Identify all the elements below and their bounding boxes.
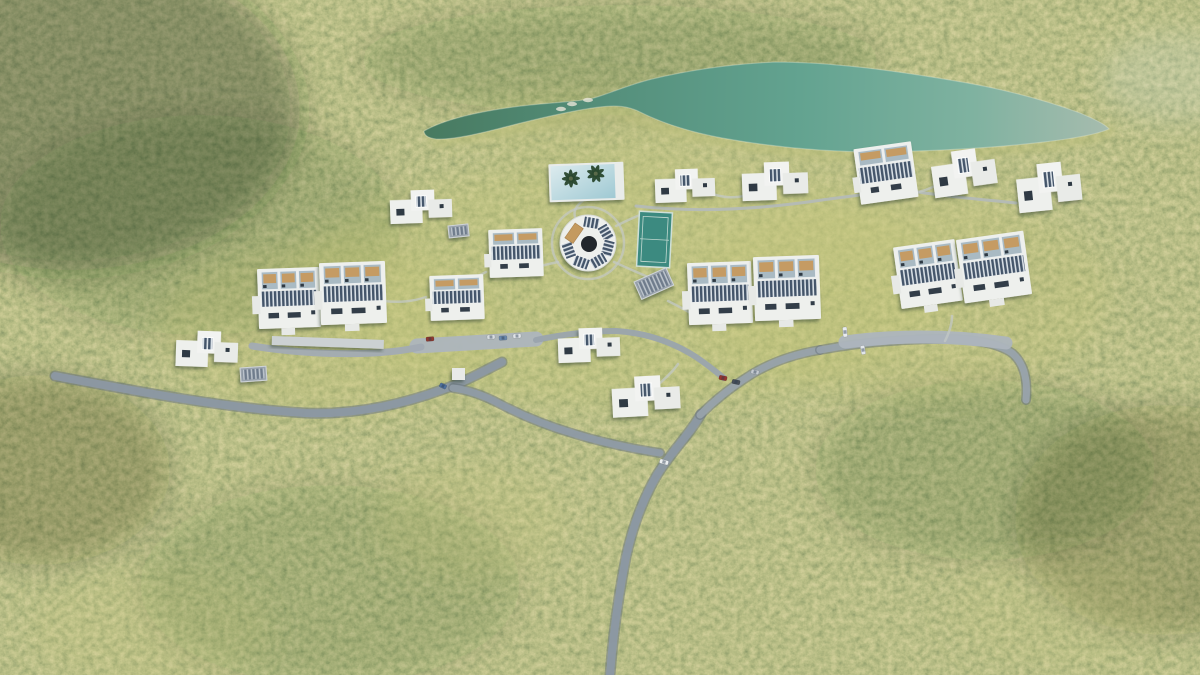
residence-block-l2-terrace: [345, 324, 360, 332]
villa-5-skylight: [1068, 182, 1072, 186]
car-2: [487, 335, 495, 340]
villa-3-skylight: [795, 178, 799, 182]
residence-block-c1-patio-furniture: [693, 268, 707, 278]
amphitheater: [560, 215, 616, 271]
residence-block-r2-patio-furniture: [983, 240, 999, 252]
villa-1-skylight: [440, 204, 444, 208]
amphitheater-courtyard: [581, 236, 597, 252]
residence-block-r2-skylight: [1020, 277, 1025, 282]
villa-3-louvre: [769, 169, 781, 182]
villa-4-skylight: [983, 167, 988, 172]
residence-block-c1-wing: [682, 291, 691, 310]
villa-1-louvre: [416, 196, 427, 208]
residence-block-c1-patio-furniture: [712, 267, 726, 277]
villa-1-window: [396, 209, 404, 216]
solar-house-1-patio-furniture: [494, 234, 512, 241]
solar-house-2-solar-band: [432, 289, 482, 304]
residence-block-l2-wing: [314, 291, 323, 310]
ground-solar-3-cells: [242, 368, 265, 380]
residence-block-l1-terrace: [281, 328, 295, 335]
residence-block-l2-patio-furniture: [365, 267, 379, 277]
solar-house-1: [483, 228, 544, 278]
villa-3-wing-c: [783, 172, 809, 194]
clearing-light-patch-5: [375, 460, 565, 580]
residence-block-c1-roof-vent: [712, 279, 716, 282]
residence-block-c2-roof-vent: [799, 273, 803, 276]
residence-block-c2-window-1: [765, 304, 776, 310]
villa-8-window: [619, 399, 628, 407]
residence-block-r1-roof-vent: [938, 258, 942, 261]
villa-6-window: [182, 350, 190, 357]
lake-rock-2: [556, 107, 566, 111]
residence-block-c1-window-1: [699, 308, 710, 314]
solar-house-1-solar-band: [491, 244, 541, 260]
residence-block-r2-roof-vent: [1005, 250, 1009, 253]
car-4-windshield: [515, 334, 518, 337]
residence-block-l1-roof-vent: [282, 284, 286, 287]
villa-2-skylight: [703, 183, 707, 187]
residence-block-l2-skylight: [377, 306, 381, 310]
residence-block-l2-patio-furniture: [345, 267, 359, 277]
ground-solar-2: [448, 224, 469, 238]
lake-rock-1: [583, 98, 593, 102]
residence-block-l1-wing: [252, 296, 261, 314]
villa-3-window: [749, 184, 758, 192]
residence-block-c2-wing: [748, 286, 757, 305]
residence-block-c2-skylight: [811, 301, 815, 305]
residence-block-c2-solar-band: [757, 279, 818, 298]
car-11-windshield: [861, 348, 865, 352]
aerial-masterplan-render: [0, 0, 1200, 675]
residence-block-l2: [313, 261, 387, 332]
villa-2-louvre: [680, 175, 691, 187]
car-1: [426, 336, 434, 341]
car-2-windshield: [489, 335, 492, 338]
residence-block-c2-patio-furniture: [799, 261, 813, 271]
swimming-pool: [548, 162, 624, 203]
villa-4-louvre: [957, 157, 970, 173]
residence-block-c1-window-2: [719, 307, 733, 313]
residence-block-l1-patio-furniture: [282, 273, 295, 282]
villa-4-wing-c: [970, 159, 997, 186]
pool-water: [550, 164, 615, 200]
villa-5-window: [1024, 191, 1033, 201]
residence-block-l2-roof-vent: [365, 278, 369, 281]
villa-2-wing-c: [692, 178, 715, 197]
villa-8-skylight: [666, 393, 670, 397]
residence-block-l1-window-2: [288, 312, 301, 318]
villa-4-window: [939, 177, 948, 187]
villa-7-louvre: [584, 334, 595, 346]
ground-solar-2-cells: [450, 226, 467, 236]
residence-block-l2-roof-vent: [325, 280, 329, 283]
residence-block-r1-roof-vent: [901, 263, 905, 266]
ground-solar-3: [240, 366, 267, 382]
residence-block-c1-patio-furniture: [732, 267, 746, 277]
render-canvas: [0, 0, 1200, 675]
solar-house-2-window-2: [460, 307, 470, 312]
residence-block-l1-solar-band: [261, 289, 318, 307]
utility-shed: [452, 368, 465, 380]
solar-house-1-wing: [484, 254, 491, 268]
residence-block-l2-roof-vent: [345, 279, 349, 282]
villa-5-louvre: [1042, 171, 1054, 188]
residence-block-r1-patio-furniture: [937, 245, 951, 256]
clearing-light-patch-7: [948, 557, 1168, 667]
residence-block-c2-patio-furniture: [779, 261, 793, 271]
car-10: [842, 327, 847, 337]
villa-8-louvre: [640, 383, 652, 397]
residence-block-c1-terrace: [712, 324, 726, 331]
car-3: [499, 336, 507, 341]
solar-house-2-patio-furniture: [459, 279, 477, 285]
residence-block-r1-patio-furniture: [900, 250, 914, 261]
solar-house-1-window-2: [519, 263, 529, 268]
residence-block-l1-skylight: [311, 310, 315, 314]
residence-block-r1-skylight: [951, 284, 956, 289]
residence-block-c2-roof-vent: [759, 274, 763, 277]
residence-block-l2-solar-band: [323, 284, 384, 303]
residence-block-l1: [251, 267, 321, 336]
villa-6-louvre: [202, 337, 213, 350]
villa-8-wing-c: [654, 386, 681, 409]
forest-shadow-patch-5: [815, 380, 1155, 560]
residence-block-r2-roof-vent: [964, 256, 968, 259]
residence-block-r2-roof-vent: [984, 253, 988, 256]
car-3-windshield: [501, 336, 504, 339]
residence-block-c2-terrace: [779, 320, 794, 328]
amphitheater-solar-panel-0: [583, 216, 601, 230]
solar-house-1-patio-furniture: [518, 233, 536, 240]
villa-6-skylight: [226, 348, 230, 352]
parking-east: [845, 337, 1006, 343]
solar-house-2-wing: [425, 298, 432, 311]
residence-block-c1-roof-vent: [732, 278, 736, 281]
residence-block-c2-patio-furniture: [759, 262, 773, 272]
residence-block-c1: [681, 261, 753, 332]
residence-block-l2-window-1: [331, 308, 342, 314]
utility-shed-roof: [452, 368, 465, 380]
solar-house-2: [424, 274, 485, 321]
villa-7-skylight: [608, 343, 612, 347]
solar-house-2-window-1: [441, 308, 449, 313]
villa-7-window: [564, 347, 572, 354]
tennis-court: [637, 211, 673, 268]
car-1-windshield: [428, 337, 431, 340]
car-4: [513, 334, 521, 339]
villa-7-wing-c: [596, 337, 620, 357]
car-10-windshield: [843, 330, 847, 334]
residence-block-c2: [747, 255, 821, 328]
residence-block-l2-window-2: [352, 307, 366, 313]
residence-block-c1-roof-vent: [693, 280, 697, 283]
residence-block-r2-patio-furniture: [963, 243, 979, 255]
solar-house-3-window-1: [870, 186, 879, 193]
residence-block-r2-patio-furniture: [1004, 237, 1020, 249]
villa-5-wing-c: [1056, 174, 1083, 202]
residence-block-l2-patio-furniture: [325, 268, 339, 278]
residence-block-r1-patio-furniture: [918, 248, 932, 259]
villa-1-wing-c: [428, 199, 452, 218]
lake-rock-0: [567, 102, 577, 106]
residence-block-l1-roof-vent: [263, 285, 267, 288]
parking-west: [417, 339, 536, 346]
residence-block-c2-roof-vent: [779, 273, 783, 276]
residence-block-l1-patio-furniture: [300, 273, 313, 282]
residence-block-c1-solar-band: [691, 284, 750, 303]
villa-2-window: [661, 188, 669, 195]
residence-block-r1-roof-vent: [919, 260, 923, 263]
residence-block-l1-roof-vent: [300, 284, 304, 287]
solar-house-2-patio-furniture: [435, 280, 453, 286]
villa-6-wing-c: [214, 342, 238, 363]
solar-house-1-window-1: [500, 264, 508, 269]
residence-block-l1-window-1: [268, 313, 279, 319]
residence-block-c1-skylight: [743, 306, 747, 310]
residence-block-l1-patio-furniture: [263, 274, 276, 283]
residence-block-c2-window-2: [786, 303, 800, 309]
